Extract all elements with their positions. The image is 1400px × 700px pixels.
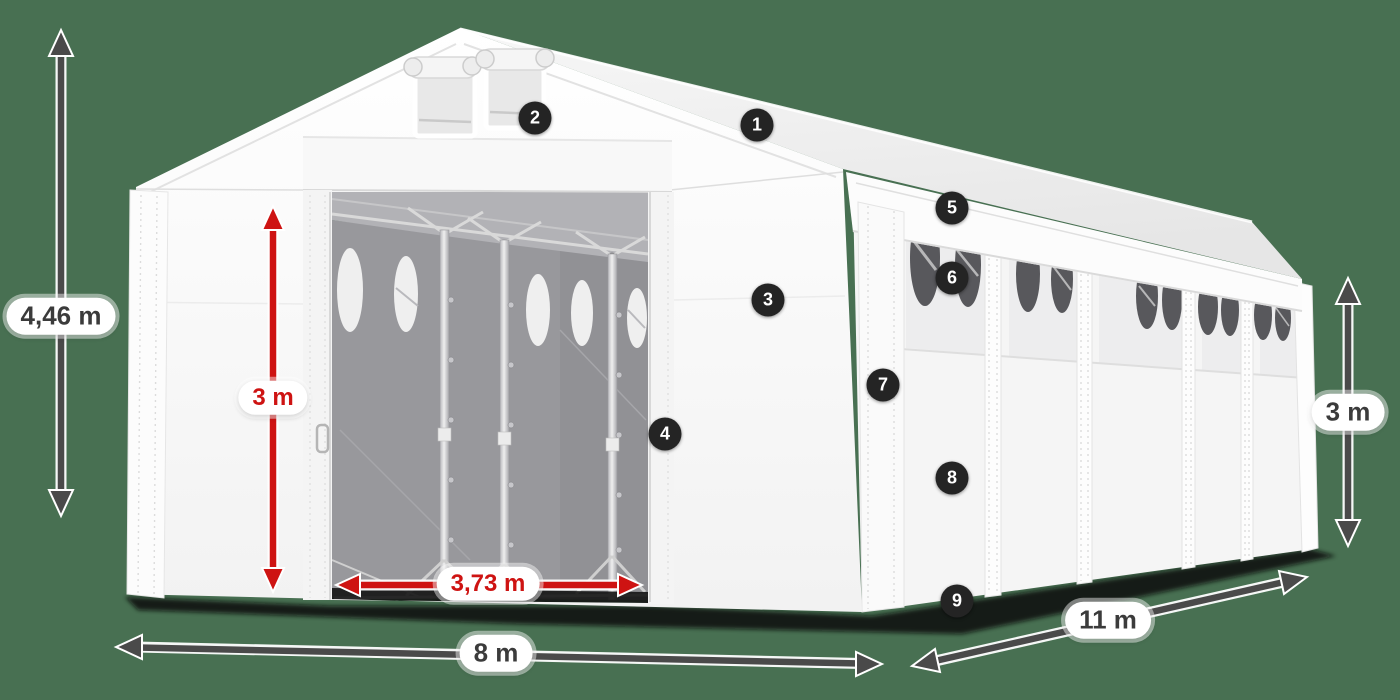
arrow-casings [61,48,1348,664]
callout-8[interactable]: 8 [936,462,969,495]
door-height-label: 3 m [238,381,307,415]
dimension-arrows [0,0,1400,700]
door-width-label: 3,73 m [437,567,540,601]
gray-arrowheads [49,30,1360,676]
callout-2[interactable]: 2 [519,102,552,135]
callout-9[interactable]: 9 [941,585,974,618]
callout-6[interactable]: 6 [936,262,969,295]
red-dimension-arrows [262,206,642,596]
tent-diagram: 4,46 m 3 m 3,73 m 8 m 11 m 3 m 1 2 3 4 5… [0,0,1400,700]
side-length-label: 11 m [1065,602,1151,639]
callout-7[interactable]: 7 [867,369,900,402]
callout-1[interactable]: 1 [741,109,774,142]
callout-3[interactable]: 3 [752,284,785,317]
red-arrowheads [262,206,642,596]
gray-dimension-arrows [49,30,1360,676]
callout-5[interactable]: 5 [936,192,969,225]
total-height-label: 4,46 m [7,298,116,335]
front-width-label: 8 m [460,635,533,672]
side-height-label: 3 m [1312,394,1385,431]
callout-4[interactable]: 4 [649,418,682,451]
